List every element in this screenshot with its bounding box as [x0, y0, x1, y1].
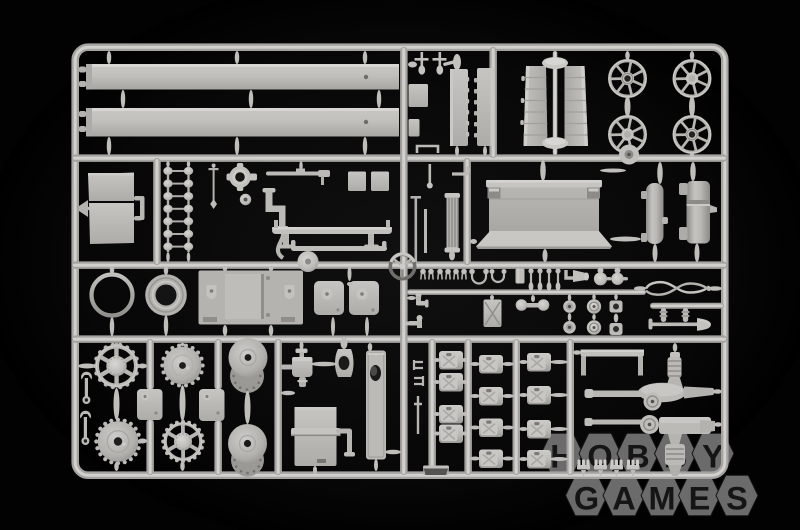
- svg-text:G: G: [574, 480, 599, 516]
- svg-text:A: A: [612, 480, 635, 516]
- svg-text:E: E: [689, 480, 711, 516]
- svg-text:S: S: [726, 480, 748, 516]
- svg-text:M: M: [648, 480, 675, 516]
